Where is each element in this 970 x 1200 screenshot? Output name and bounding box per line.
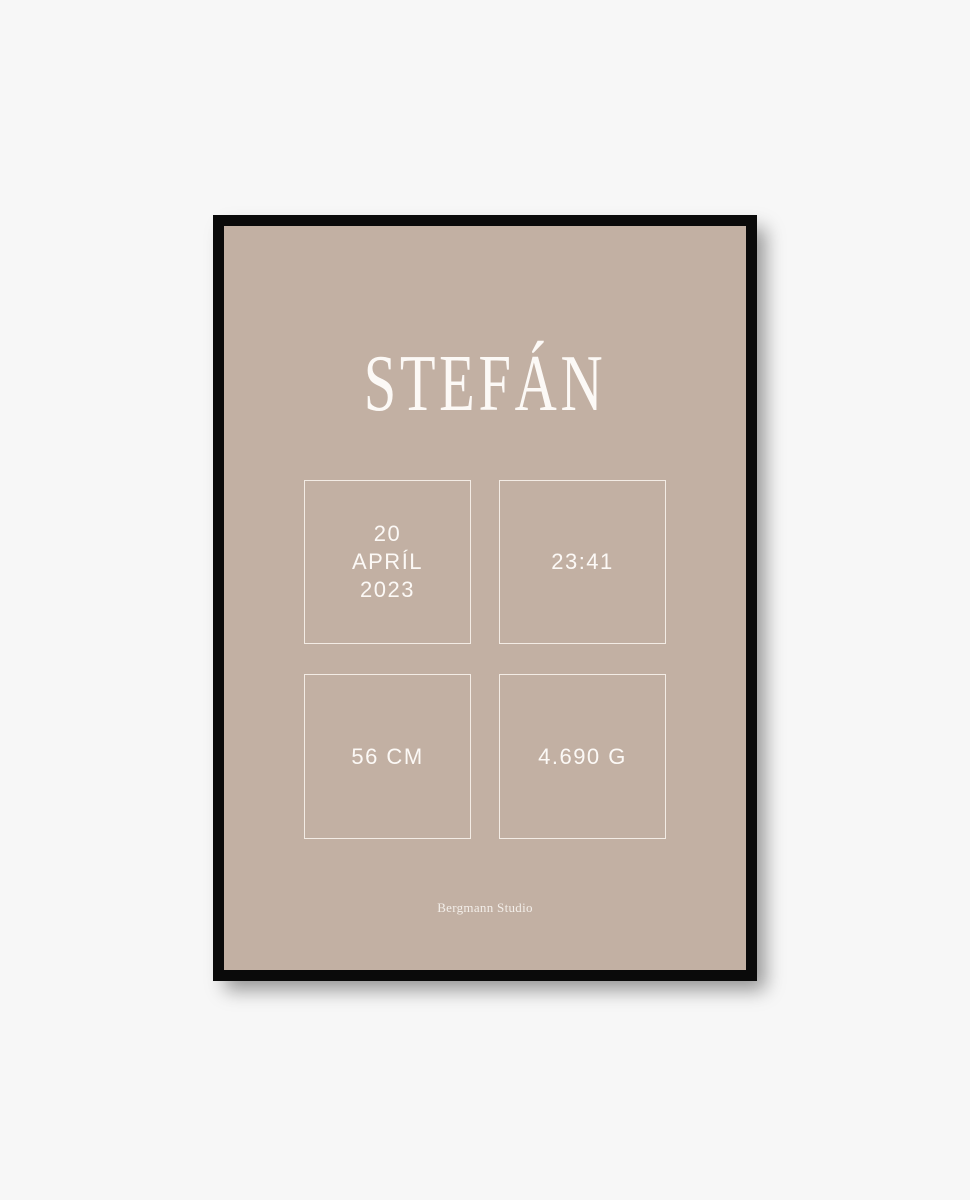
stats-grid: 20 APRÍL 2023 23:41 56 CM 4.690 G xyxy=(304,480,666,839)
poster-canvas: STEFÁN 20 APRÍL 2023 23:41 56 CM 4.690 G xyxy=(224,226,746,970)
stat-line: 2023 xyxy=(360,576,415,604)
stat-line: 20 xyxy=(374,520,401,548)
stat-box-birth-weight: 4.690 G xyxy=(499,674,666,839)
stat-box-birth-time: 23:41 xyxy=(499,480,666,644)
stat-line: 23:41 xyxy=(551,548,614,576)
stat-box-birth-length: 56 CM xyxy=(304,674,471,839)
page-background: STEFÁN 20 APRÍL 2023 23:41 56 CM 4.690 G xyxy=(0,0,970,1200)
poster-title: STEFÁN xyxy=(294,344,675,424)
poster-frame: STEFÁN 20 APRÍL 2023 23:41 56 CM 4.690 G xyxy=(213,215,757,981)
stat-line: 56 CM xyxy=(351,743,423,771)
stat-box-birth-date: 20 APRÍL 2023 xyxy=(304,480,471,644)
stat-line: 4.690 G xyxy=(538,743,627,771)
stat-line: APRÍL xyxy=(352,548,423,576)
brand-signature: Bergmann Studio xyxy=(224,900,746,916)
